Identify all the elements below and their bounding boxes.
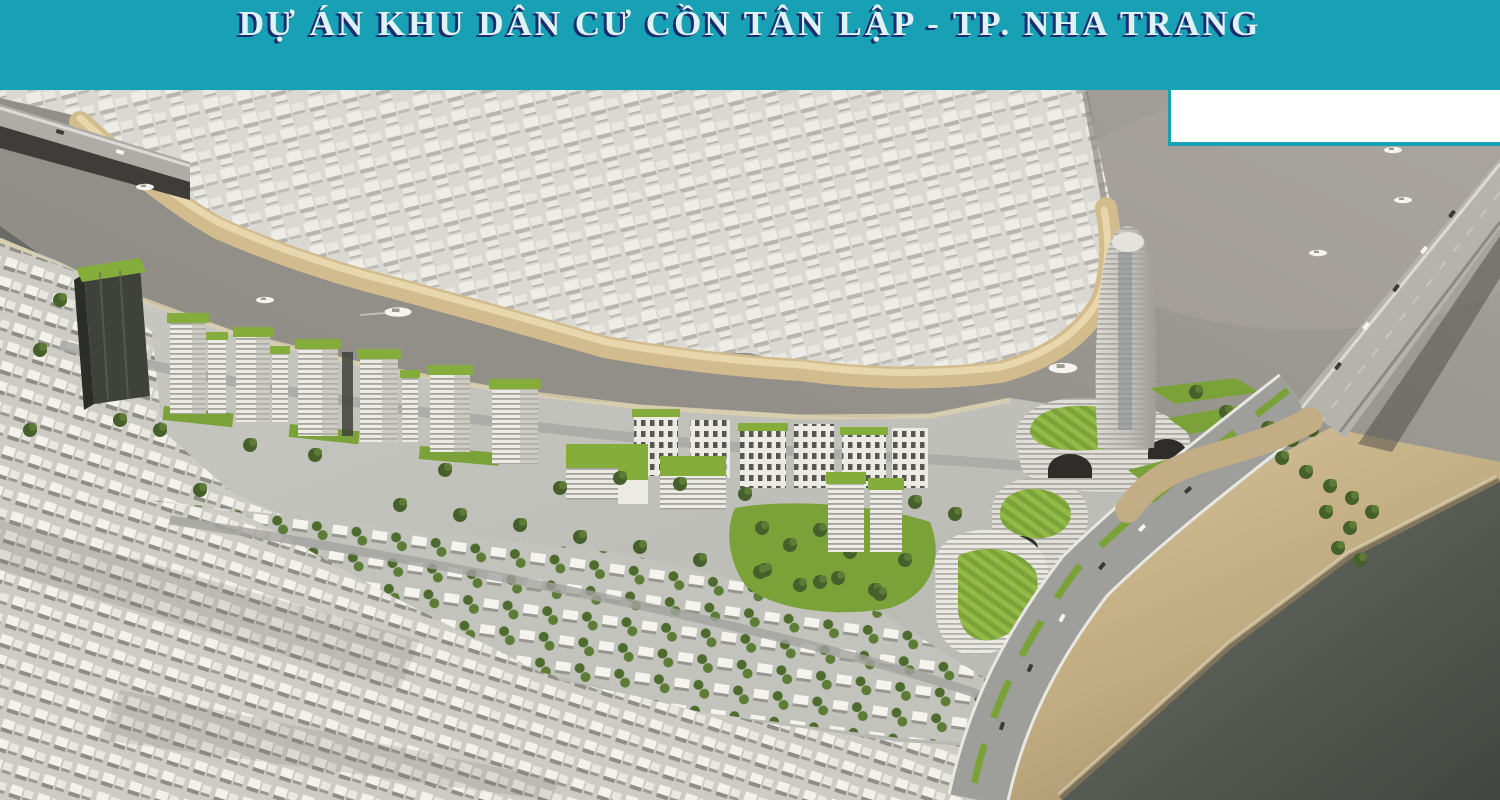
watermark-cover-box — [1168, 90, 1500, 146]
dark-tower — [74, 258, 150, 410]
aerial-render — [0, 90, 1500, 800]
screenshot-root: DỰ ÁN KHU DÂN CƯ CỒN TÂN LẬP - TP. NHA T… — [0, 0, 1500, 800]
title-banner: DỰ ÁN KHU DÂN CƯ CỒN TÂN LẬP - TP. NHA T… — [0, 0, 1500, 90]
page-title: DỰ ÁN KHU DÂN CƯ CỒN TÂN LẬP - TP. NHA T… — [0, 4, 1500, 44]
